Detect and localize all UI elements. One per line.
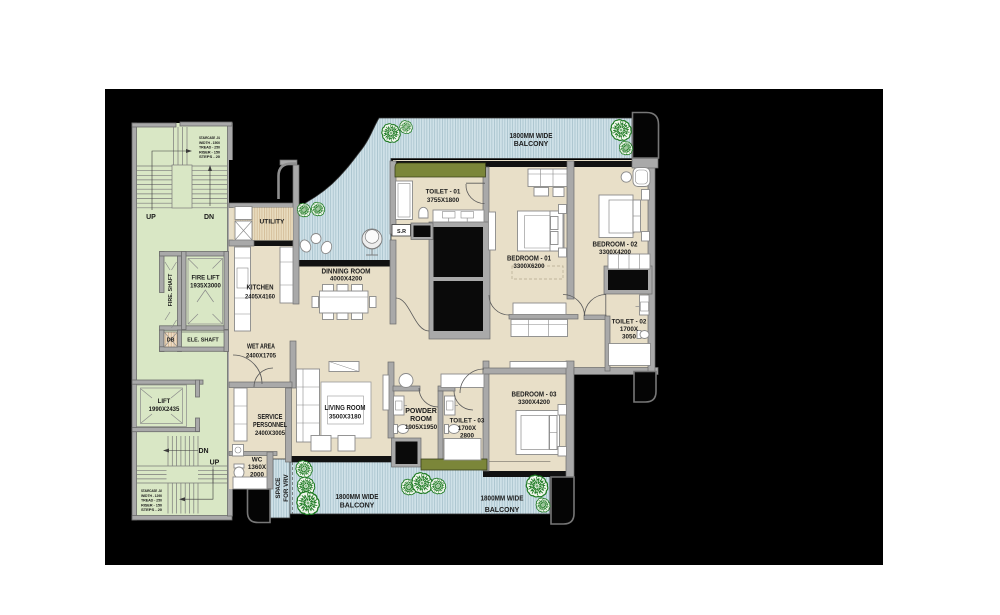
- svg-text:WIDTH - 1290: WIDTH - 1290: [141, 494, 162, 498]
- svg-text:1700X: 1700X: [458, 425, 477, 432]
- svg-text:3755X1800: 3755X1800: [427, 197, 460, 204]
- svg-text:STAIRCASE -01: STAIRCASE -01: [199, 136, 220, 140]
- svg-text:BALCONY: BALCONY: [485, 507, 520, 514]
- svg-text:1935X3000: 1935X3000: [190, 284, 221, 290]
- svg-text:FOR VRV: FOR VRV: [283, 473, 290, 501]
- svg-text:2400X3005: 2400X3005: [255, 430, 285, 437]
- svg-text:4000X4200: 4000X4200: [330, 276, 363, 283]
- svg-text:1360X: 1360X: [248, 464, 267, 471]
- svg-text:LIVING ROOM: LIVING ROOM: [325, 403, 366, 412]
- svg-text:BEDROOM - 03: BEDROOM - 03: [512, 389, 557, 398]
- svg-text:WC: WC: [252, 457, 263, 464]
- svg-text:DN: DN: [204, 214, 214, 221]
- svg-text:TOILET - 02: TOILET - 02: [612, 319, 647, 326]
- svg-text:1800MM WIDE: 1800MM WIDE: [336, 494, 379, 501]
- svg-text:3300X6200: 3300X6200: [514, 263, 545, 270]
- svg-text:SPACE: SPACE: [275, 478, 282, 499]
- svg-text:TOILET - 01: TOILET - 01: [426, 189, 461, 196]
- svg-text:1990X2435: 1990X2435: [149, 407, 180, 413]
- svg-text:2800: 2800: [460, 433, 475, 440]
- svg-text:2400X1705: 2400X1705: [246, 353, 276, 360]
- svg-text:3050: 3050: [622, 334, 637, 341]
- svg-text:BEDROOM - 02: BEDROOM - 02: [593, 240, 638, 249]
- svg-text:DB: DB: [167, 338, 175, 344]
- svg-text:POWDER: POWDER: [405, 408, 437, 415]
- svg-text:DN: DN: [198, 448, 208, 455]
- svg-text:3500X3180: 3500X3180: [329, 414, 362, 421]
- svg-text:FIRE LIFT: FIRE LIFT: [192, 276, 220, 282]
- svg-text:RISER - 150: RISER - 150: [199, 150, 220, 154]
- svg-text:1700X: 1700X: [620, 326, 639, 333]
- svg-text:BALCONY: BALCONY: [340, 503, 375, 510]
- svg-text:WIDTH - 1500: WIDTH - 1500: [199, 141, 220, 145]
- svg-text:2405X4160: 2405X4160: [245, 294, 275, 301]
- svg-text:UP: UP: [146, 214, 156, 221]
- svg-text:2000: 2000: [250, 472, 265, 479]
- svg-text:1800MM WIDE: 1800MM WIDE: [481, 496, 524, 503]
- svg-text:S.R: S.R: [397, 229, 406, 235]
- svg-text:PERSONNEL: PERSONNEL: [253, 422, 288, 429]
- svg-text:BALCONY: BALCONY: [514, 141, 549, 148]
- svg-text:TREAD - 250: TREAD - 250: [141, 499, 162, 503]
- svg-text:UP: UP: [210, 460, 220, 467]
- svg-text:1905X1950: 1905X1950: [405, 424, 438, 431]
- svg-text:RISER - 150: RISER - 150: [141, 503, 162, 507]
- svg-text:3300X4200: 3300X4200: [599, 249, 631, 256]
- svg-text:STAIRCASE -02: STAIRCASE -02: [141, 489, 162, 493]
- svg-text:STEPS - 20: STEPS - 20: [199, 155, 220, 159]
- svg-text:ROOM: ROOM: [410, 416, 432, 423]
- svg-text:TOILET - 03: TOILET - 03: [450, 418, 485, 425]
- svg-text:LIFT: LIFT: [158, 399, 171, 405]
- svg-text:KITCHEN: KITCHEN: [247, 285, 274, 292]
- svg-text:3300X4200: 3300X4200: [518, 399, 550, 406]
- svg-text:WET AREA: WET AREA: [247, 344, 275, 351]
- svg-text:STEPS - 20: STEPS - 20: [141, 508, 162, 512]
- svg-text:SERVICE: SERVICE: [258, 414, 283, 421]
- svg-text:UTILITY: UTILITY: [260, 219, 286, 226]
- svg-text:FIRE. SHAFT: FIRE. SHAFT: [168, 273, 174, 306]
- svg-text:BEDROOM - 01: BEDROOM - 01: [507, 253, 551, 262]
- svg-text:TREAD - 250: TREAD - 250: [199, 146, 220, 150]
- svg-text:ELE. SHAFT: ELE. SHAFT: [187, 338, 219, 344]
- svg-text:DINNING ROOM: DINNING ROOM: [322, 267, 371, 276]
- svg-text:1800MM WIDE: 1800MM WIDE: [510, 133, 553, 140]
